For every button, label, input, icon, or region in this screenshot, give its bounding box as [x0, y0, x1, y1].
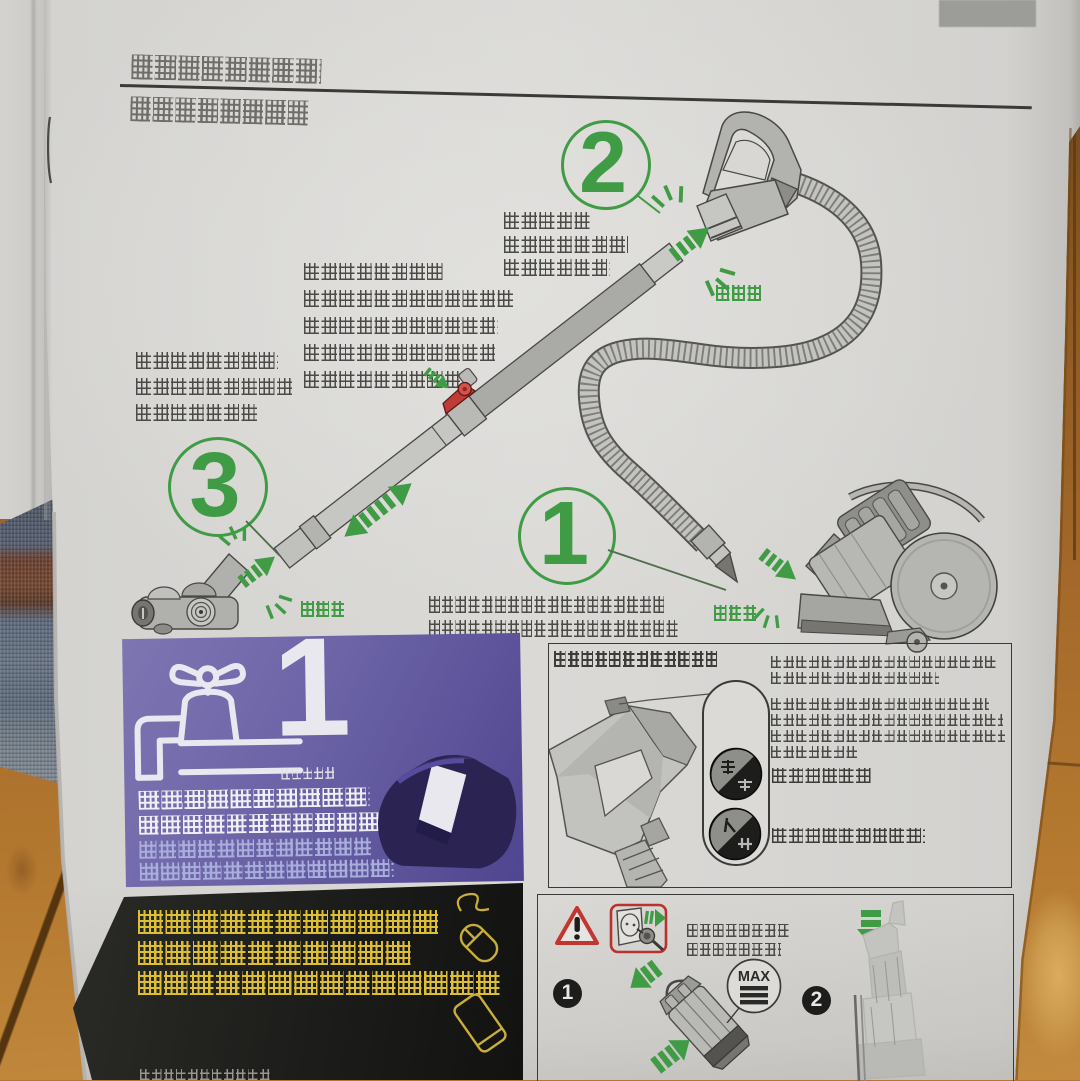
svg-text:MAX: MAX: [738, 969, 771, 985]
